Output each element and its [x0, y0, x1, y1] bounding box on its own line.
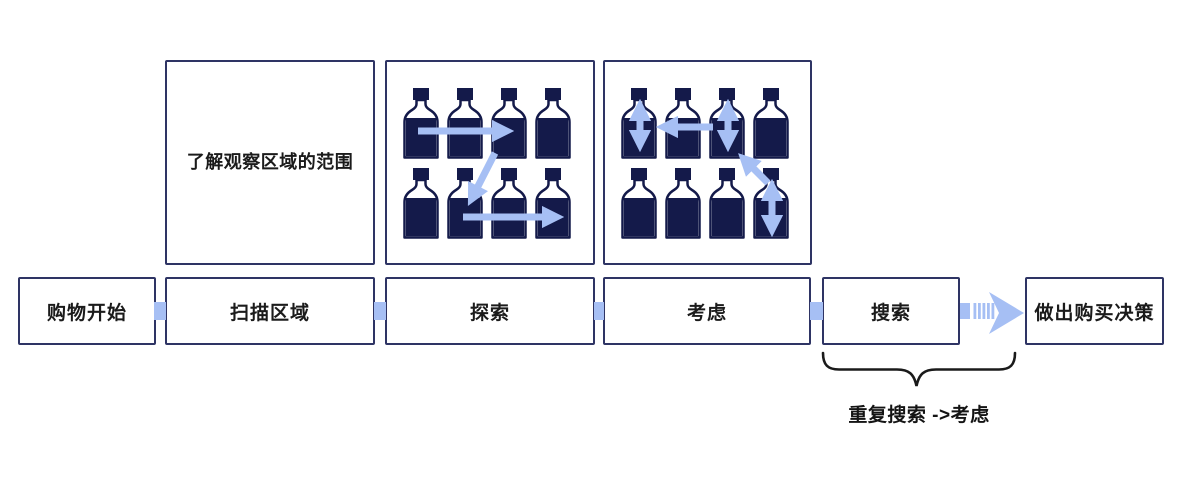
repeat-loop-brace: [821, 350, 1017, 392]
consider-detail-box: [603, 60, 812, 265]
explore-bottles-icon: [387, 62, 593, 263]
step-decision-box: 做出购买决策: [1025, 277, 1164, 345]
scan-note-text: 了解观察区域的范围: [177, 150, 364, 175]
step-consider-box: 考虑: [603, 277, 811, 345]
step-consider-label: 考虑: [687, 298, 727, 325]
connector-explore-consider: [594, 302, 604, 320]
step-explore-box: 探索: [385, 277, 595, 345]
striped-chevron-arrow-icon: [956, 288, 1028, 338]
consider-bottles-icon: [605, 62, 810, 263]
consider-compare-arrows: [640, 110, 772, 226]
scan-note-box: 了解观察区域的范围: [165, 60, 375, 265]
connector-consider-search: [810, 302, 823, 320]
step-start-label: 购物开始: [47, 298, 127, 325]
step-start-box: 购物开始: [18, 277, 156, 345]
step-scan-box: 扫描区域: [165, 277, 375, 345]
connector-start-scan: [154, 302, 166, 320]
shopping-journey-diagram: 了解观察区域的范围: [0, 0, 1200, 489]
step-scan-label: 扫描区域: [230, 298, 310, 325]
step-search-box: 搜索: [822, 277, 960, 345]
step-explore-label: 探索: [470, 298, 510, 325]
step-decision-label: 做出购买决策: [1034, 298, 1154, 325]
connector-scan-explore: [374, 302, 386, 320]
repeat-loop-label: 重复搜索 ->考虑: [811, 400, 1027, 427]
explore-detail-box: [385, 60, 595, 265]
step-search-label: 搜索: [871, 298, 911, 325]
